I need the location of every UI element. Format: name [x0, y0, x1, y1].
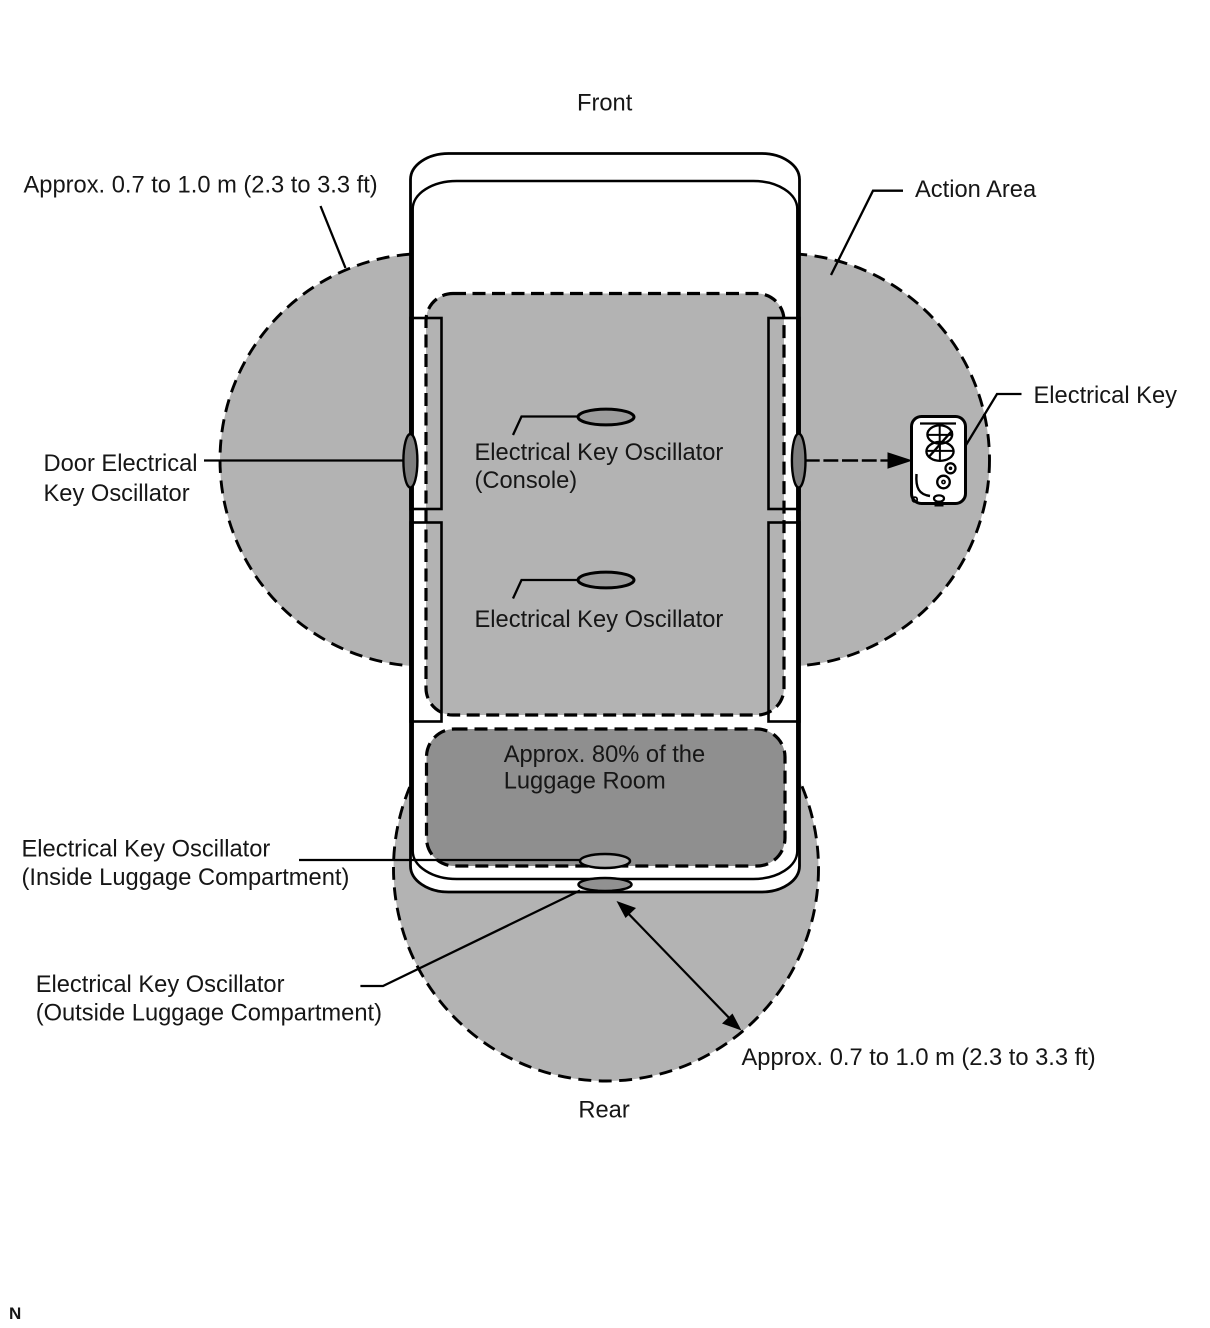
svg-text:Door Electrical: Door Electrical: [44, 451, 198, 477]
svg-text:Electrical Key Oscillator: Electrical Key Oscillator: [475, 440, 724, 466]
svg-text:Key Oscillator: Key Oscillator: [44, 481, 190, 507]
svg-text:Electrical Key Oscillator: Electrical Key Oscillator: [36, 972, 285, 998]
svg-text:(Console): (Console): [475, 468, 578, 494]
svg-text:Electrical Key: Electrical Key: [1034, 383, 1178, 409]
svg-text:Electrical Key Oscillator: Electrical Key Oscillator: [475, 607, 724, 633]
svg-text:N: N: [9, 1304, 21, 1323]
svg-text:(Outside Luggage Compartment): (Outside Luggage Compartment): [36, 1000, 382, 1026]
svg-text:(Inside Luggage Compartment): (Inside Luggage Compartment): [22, 865, 350, 891]
svg-text:Front: Front: [577, 90, 633, 116]
svg-text:Approx. 0.7 to 1.0 m (2.3 to 3: Approx. 0.7 to 1.0 m (2.3 to 3.3 ft): [24, 172, 378, 198]
svg-text:Luggage Room: Luggage Room: [504, 769, 666, 795]
svg-text:Electrical Key Oscillator: Electrical Key Oscillator: [22, 837, 271, 863]
svg-text:Approx. 80% of the: Approx. 80% of the: [504, 742, 705, 768]
svg-text:Rear: Rear: [578, 1097, 629, 1123]
svg-text:Action Area: Action Area: [915, 177, 1037, 203]
svg-text:Approx. 0.7 to 1.0 m (2.3 to 3: Approx. 0.7 to 1.0 m (2.3 to 3.3 ft): [742, 1045, 1096, 1071]
